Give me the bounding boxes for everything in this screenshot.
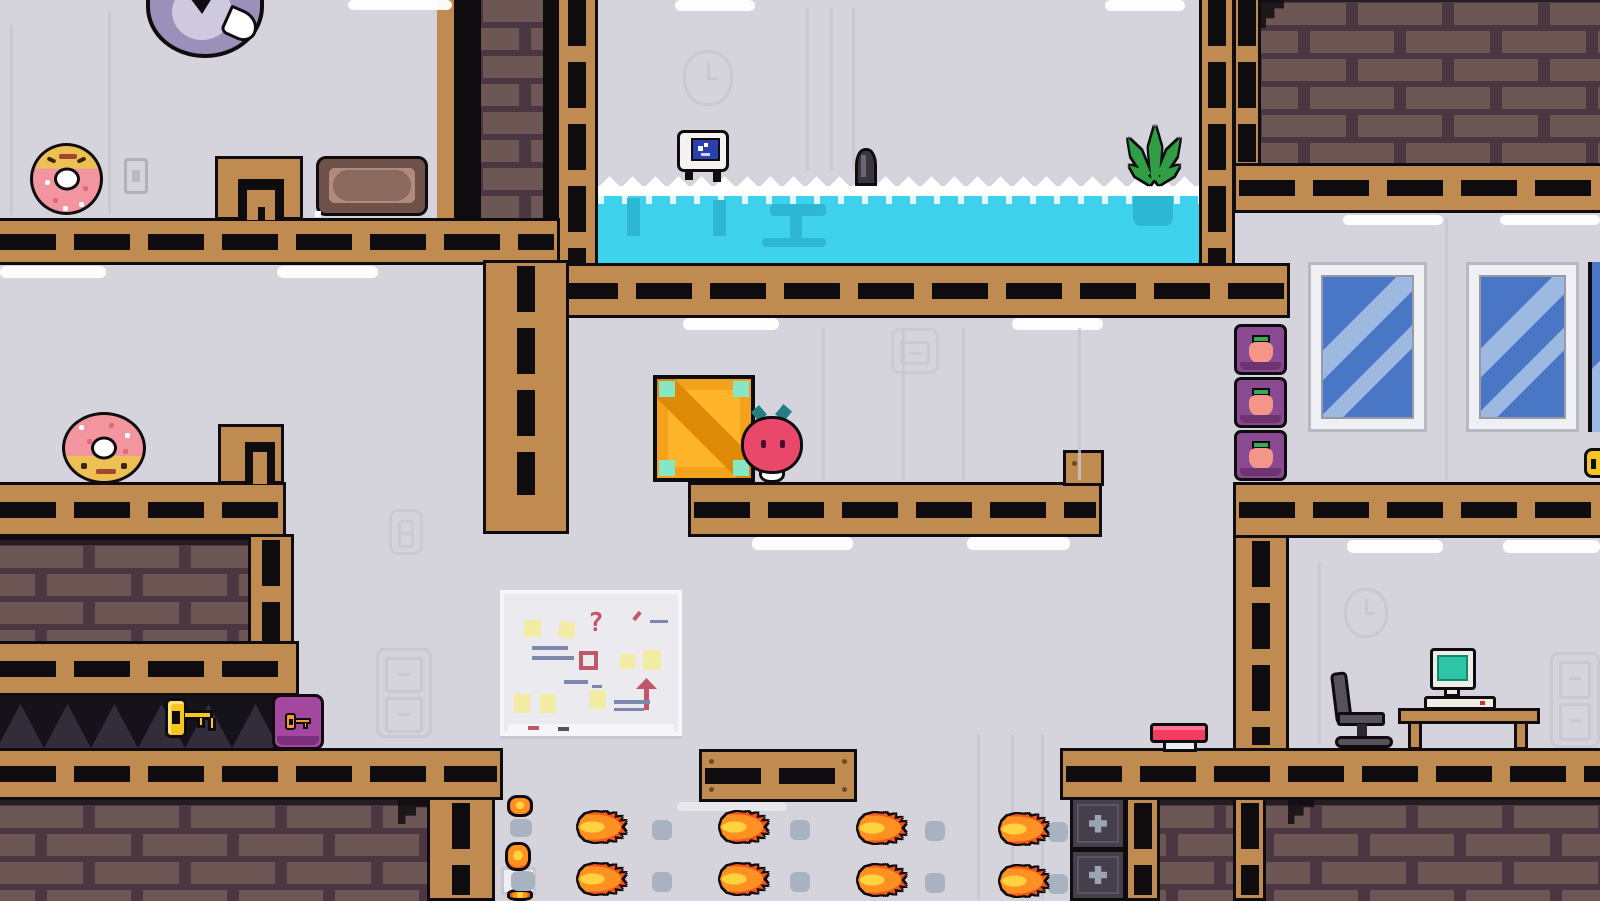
tank-floor-platform (556, 263, 1290, 318)
radish-block[interactable] (1234, 430, 1287, 481)
wall-clock-icon (683, 50, 733, 106)
sticky-note (514, 694, 530, 713)
file-cabinet-outline (376, 648, 432, 738)
brick-wall-bottom-left (0, 797, 434, 901)
fireball-sprite (858, 813, 906, 843)
bench-cushion (316, 156, 428, 216)
purple-bird (146, 0, 264, 58)
platform-left-mid (0, 482, 286, 537)
wall-seam (1445, 218, 1448, 480)
floor-bottom-left (0, 748, 503, 800)
ceiling-light (1347, 540, 1443, 553)
smoke-puff (652, 872, 672, 892)
radish-body (741, 416, 803, 474)
metal-crate[interactable] (1070, 797, 1126, 850)
water (598, 196, 1201, 263)
submerged-desk-leg (790, 216, 802, 238)
fire-pellet (505, 842, 531, 871)
window-glass (1321, 275, 1414, 419)
red-arrow-head (636, 678, 657, 689)
window-glass (1479, 275, 1566, 419)
whiteboard: ? (500, 590, 682, 736)
note-line (532, 656, 574, 660)
wall-seam (830, 8, 833, 170)
submerged-leg (627, 198, 640, 236)
platform-left-lower (0, 641, 299, 696)
ceiling-light (675, 0, 755, 11)
floor-bottom-right (1060, 748, 1600, 800)
submerged-pot (1133, 196, 1173, 226)
monitor-screen (691, 138, 720, 161)
radish-block[interactable] (1234, 324, 1287, 375)
office-chair (1333, 672, 1395, 750)
fireball-sprite (1000, 866, 1048, 896)
wall-seam (1078, 328, 1081, 480)
submerged-desk-base (762, 238, 826, 247)
brick-wall-bottom-right (1125, 797, 1600, 901)
ceiling-light (1343, 215, 1443, 225)
note-line (532, 646, 568, 650)
wall-bottom-left (427, 797, 495, 901)
beam-bottom (1125, 797, 1160, 901)
window-edge-sliver (1588, 262, 1600, 432)
computer-screen (1437, 655, 1468, 681)
platform-right-upper (1233, 163, 1600, 213)
tank-wall-right (1199, 0, 1235, 270)
floating-platform (699, 749, 857, 802)
smoke-puff (511, 871, 535, 891)
ceiling-light (1105, 0, 1185, 11)
wall-seam (1318, 562, 1321, 744)
beam-top-right (1233, 0, 1261, 168)
ceiling-light (1012, 318, 1103, 330)
plant (1128, 126, 1180, 192)
platform-top-left (0, 218, 560, 265)
wall-divider-right (1233, 535, 1289, 751)
smoke-puff (652, 820, 672, 840)
red-button[interactable] (1150, 723, 1208, 752)
red-square-doodle (579, 651, 598, 670)
ceiling-light (967, 537, 1070, 550)
smoke-puff (1048, 874, 1068, 894)
ceiling-light (1503, 540, 1600, 553)
ceiling-light (683, 318, 779, 330)
wall-seam (962, 328, 965, 480)
wall-seam (822, 328, 825, 480)
sticky-note (524, 620, 541, 637)
marker (528, 726, 539, 730)
file-cabinet-outline (1550, 652, 1600, 748)
ceiling-light (752, 537, 853, 550)
wall-clock-icon (1344, 588, 1388, 638)
wall-frame-outline (891, 328, 939, 374)
smoke-puff (790, 872, 810, 892)
smoke-puff (925, 821, 945, 841)
wall-seam (977, 735, 980, 899)
metal-crate[interactable] (1070, 849, 1126, 901)
window (1466, 262, 1579, 432)
wall-seam (806, 8, 809, 170)
edge-key[interactable] (1584, 448, 1600, 478)
fireball-sprite (578, 812, 626, 842)
wall-seam (10, 25, 13, 215)
smoke-puff (925, 873, 945, 893)
wall-frame-outline (389, 509, 423, 555)
brick-wall-top-right (1257, 0, 1600, 168)
note-line (650, 620, 668, 623)
beam-bottom (1233, 797, 1266, 901)
light-switch[interactable] (124, 158, 148, 194)
marker (558, 727, 569, 731)
window (1308, 262, 1427, 432)
note-line (592, 685, 602, 688)
wall-seam (852, 8, 855, 170)
ceiling-light (1500, 215, 1600, 225)
fireball-sprite (720, 864, 768, 894)
submerged-leg (713, 200, 726, 236)
brick-column (437, 0, 568, 224)
note-line (614, 708, 644, 711)
crate[interactable] (653, 375, 755, 482)
smoke-puff (790, 820, 810, 840)
lock-block[interactable] (272, 694, 324, 750)
sticky-note (620, 654, 635, 669)
ceiling-light (677, 802, 787, 811)
desk (1398, 708, 1540, 750)
platform-step (1063, 450, 1104, 486)
donut-collectible[interactable] (62, 412, 146, 484)
game-scene[interactable]: ? (0, 0, 1600, 901)
periscope-object (855, 148, 877, 186)
platform-center (688, 482, 1102, 537)
sticky-note (540, 694, 556, 713)
submerged-desk (770, 204, 826, 216)
tank-wall-left (556, 0, 598, 270)
question-mark: ? (588, 608, 604, 638)
spike-pit (0, 693, 276, 751)
fire-pellet (507, 795, 533, 817)
floor-right-room (1233, 482, 1600, 538)
radish-hero[interactable] (741, 414, 803, 485)
note-line (564, 680, 588, 684)
fireball-sprite (720, 812, 768, 842)
red-tick-doodle (632, 611, 641, 621)
red-arrow-doodle (644, 686, 649, 710)
fireball-sprite (1000, 814, 1048, 844)
golden-key[interactable] (165, 694, 217, 744)
fireball-sprite (858, 865, 906, 895)
radish-block[interactable] (1234, 377, 1287, 428)
wall-seam (902, 328, 905, 480)
sticky-note (643, 650, 661, 670)
monitor-buddy (677, 130, 729, 180)
smoke-puff (1048, 822, 1068, 842)
hanging-wall-column (483, 260, 569, 534)
sticky-note (590, 690, 606, 709)
ceiling-light (348, 0, 452, 10)
desk-computer (1424, 648, 1496, 712)
ceiling-light (277, 266, 378, 278)
sticky-note (558, 621, 576, 639)
wooden-vent (218, 424, 284, 484)
donut-collectible[interactable] (30, 143, 103, 215)
smoke-puff (510, 819, 532, 837)
note-line (614, 700, 650, 704)
wooden-vent (215, 156, 303, 220)
wall-seam (108, 10, 111, 213)
fireball-sprite (578, 864, 626, 894)
ceiling-light (0, 266, 106, 278)
beam-left-mid (248, 534, 294, 650)
